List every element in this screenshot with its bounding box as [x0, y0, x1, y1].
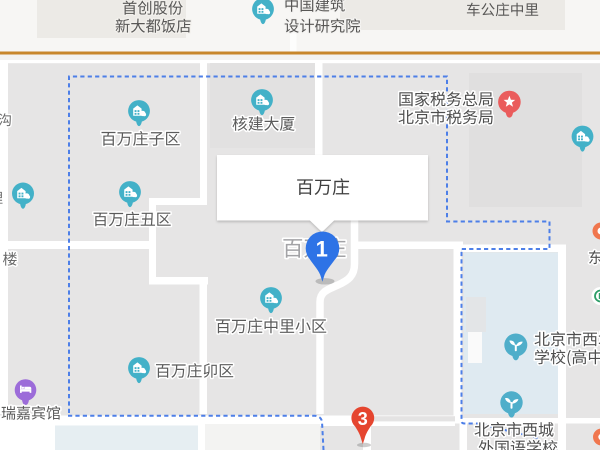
svg-text:1: 1 — [316, 237, 328, 262]
svg-text:3: 3 — [358, 409, 368, 429]
